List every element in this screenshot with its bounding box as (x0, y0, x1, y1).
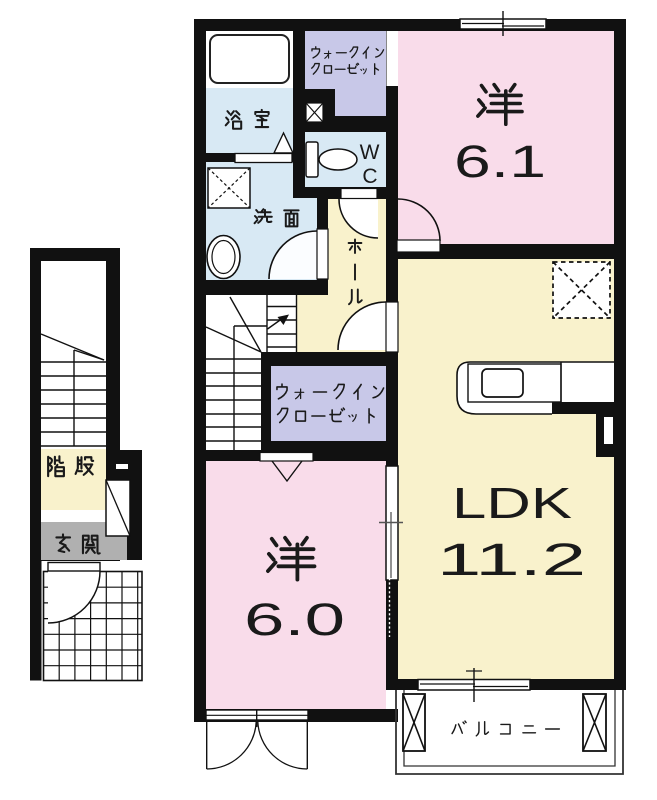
svg-text:6.1: 6.1 (454, 136, 546, 187)
svg-text:6.0: 6.0 (244, 594, 345, 645)
svg-text:W: W (360, 141, 380, 164)
svg-text:C: C (362, 165, 377, 188)
svg-text:LDK: LDK (452, 479, 572, 528)
svg-text:11.2: 11.2 (437, 534, 586, 585)
